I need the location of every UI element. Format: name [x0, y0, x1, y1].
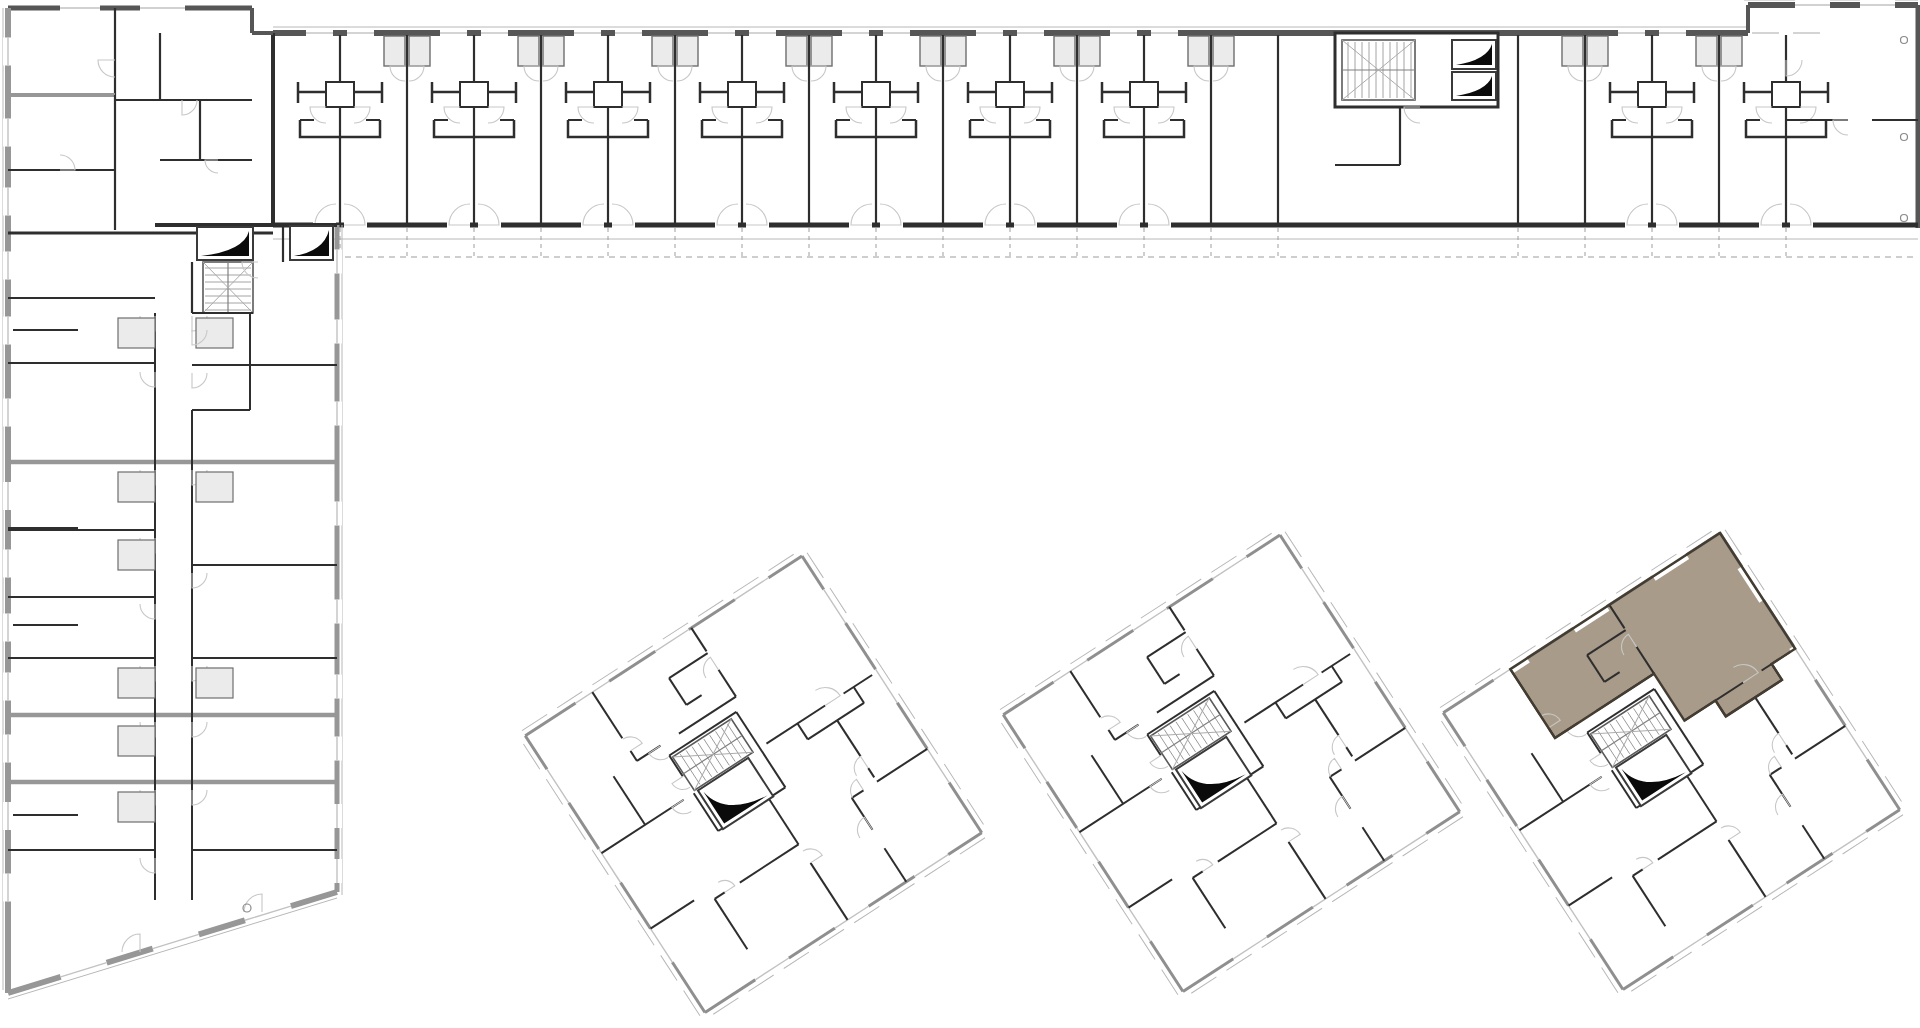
door-arc [945, 66, 960, 81]
closet-box [1772, 82, 1800, 107]
door-arc [1568, 66, 1583, 81]
bathroom-pod [118, 668, 155, 698]
window-glazing [153, 934, 199, 948]
closet-box [594, 82, 622, 107]
bathroom-pod [1079, 36, 1100, 66]
door-arc [677, 66, 692, 81]
elevator-icon [1452, 40, 1496, 69]
bathroom-pod [945, 36, 966, 66]
door-arc [524, 66, 539, 81]
facade-outer-line [8, 898, 337, 999]
column-symbol [1901, 215, 1908, 222]
bathroom-pod [677, 36, 698, 66]
left-wing[interactable] [3, 3, 342, 999]
door-arc [182, 100, 197, 115]
bathroom-pod [786, 36, 807, 66]
bathroom-pod [652, 36, 673, 66]
door-arc [1587, 66, 1602, 81]
bathroom-pod [518, 36, 539, 66]
bathroom-pod [118, 726, 155, 756]
door-arc [1702, 66, 1717, 81]
door-arc [1213, 66, 1228, 81]
door-arc [390, 66, 405, 81]
junction-stair-core [155, 225, 337, 345]
door-arc [811, 66, 826, 81]
door-arc [1833, 120, 1848, 135]
tower-2[interactable] [995, 527, 1468, 1000]
bathroom-pod [920, 36, 941, 66]
unit-door-arc [140, 604, 155, 619]
window-glazing [61, 963, 107, 977]
bathroom-pod [196, 472, 233, 502]
tower-1[interactable] [517, 548, 990, 1021]
closet-box [1638, 82, 1666, 107]
elevator-icon [290, 226, 333, 260]
unit-door-arc [140, 372, 155, 387]
door-arc [1404, 107, 1420, 123]
closet-box [460, 82, 488, 107]
stair-flight [1342, 40, 1415, 100]
door-arc [98, 60, 115, 77]
bathroom-pod [118, 472, 155, 502]
closet-box [862, 82, 890, 107]
door-arc [658, 66, 673, 81]
door-arc [1721, 66, 1736, 81]
bathroom-pod [1562, 36, 1583, 66]
closet-box [728, 82, 756, 107]
bathroom-pod [384, 36, 405, 66]
bathroom-pod [1696, 36, 1717, 66]
bathroom-pod [1188, 36, 1209, 66]
stair-flight [203, 262, 253, 313]
door-arc [926, 66, 941, 81]
column-symbol [1901, 37, 1908, 44]
bathroom-pod [1721, 36, 1742, 66]
door-arc [1786, 60, 1802, 76]
column-symbol [1901, 134, 1908, 141]
unit-door-arc [140, 858, 155, 873]
floor-plan-canvas [0, 0, 1920, 1028]
door-arc [205, 160, 218, 173]
closet-box [326, 82, 354, 107]
bathroom-pod [118, 540, 155, 570]
door-arc [1079, 66, 1094, 81]
bathroom-pod [811, 36, 832, 66]
window-glazing [245, 906, 291, 920]
door-arc [1194, 66, 1209, 81]
door-arc [244, 894, 262, 912]
corner-apartment [8, 3, 252, 230]
unit-door-arc [192, 373, 207, 388]
bathroom-pod [1587, 36, 1608, 66]
top-wing-stair-core [1335, 33, 1498, 165]
unit-door-arc [192, 573, 207, 588]
bathroom-pod [118, 792, 155, 822]
elevator-icon [1452, 72, 1496, 100]
tower-3[interactable] [1435, 525, 1908, 998]
bathroom-pod [543, 36, 564, 66]
bathroom-pod [196, 668, 233, 698]
door-arc [60, 155, 75, 170]
unit-door-arc [192, 722, 207, 737]
door-arc [543, 66, 558, 81]
door-arc [792, 66, 807, 81]
bathroom-pod [1054, 36, 1075, 66]
elevator-icon [197, 227, 253, 260]
door-arc [409, 66, 424, 81]
bathroom-pod [409, 36, 430, 66]
top-wing[interactable] [273, 0, 1918, 257]
floor-plan-page [0, 0, 1920, 1028]
unit-door-arc [192, 790, 207, 805]
bathroom-pod [118, 318, 155, 348]
bathroom-pod [1213, 36, 1234, 66]
closet-box [996, 82, 1024, 107]
door-arc [122, 934, 140, 952]
door-arc [1060, 66, 1075, 81]
bathroom-pod [196, 318, 233, 348]
closet-box [1130, 82, 1158, 107]
